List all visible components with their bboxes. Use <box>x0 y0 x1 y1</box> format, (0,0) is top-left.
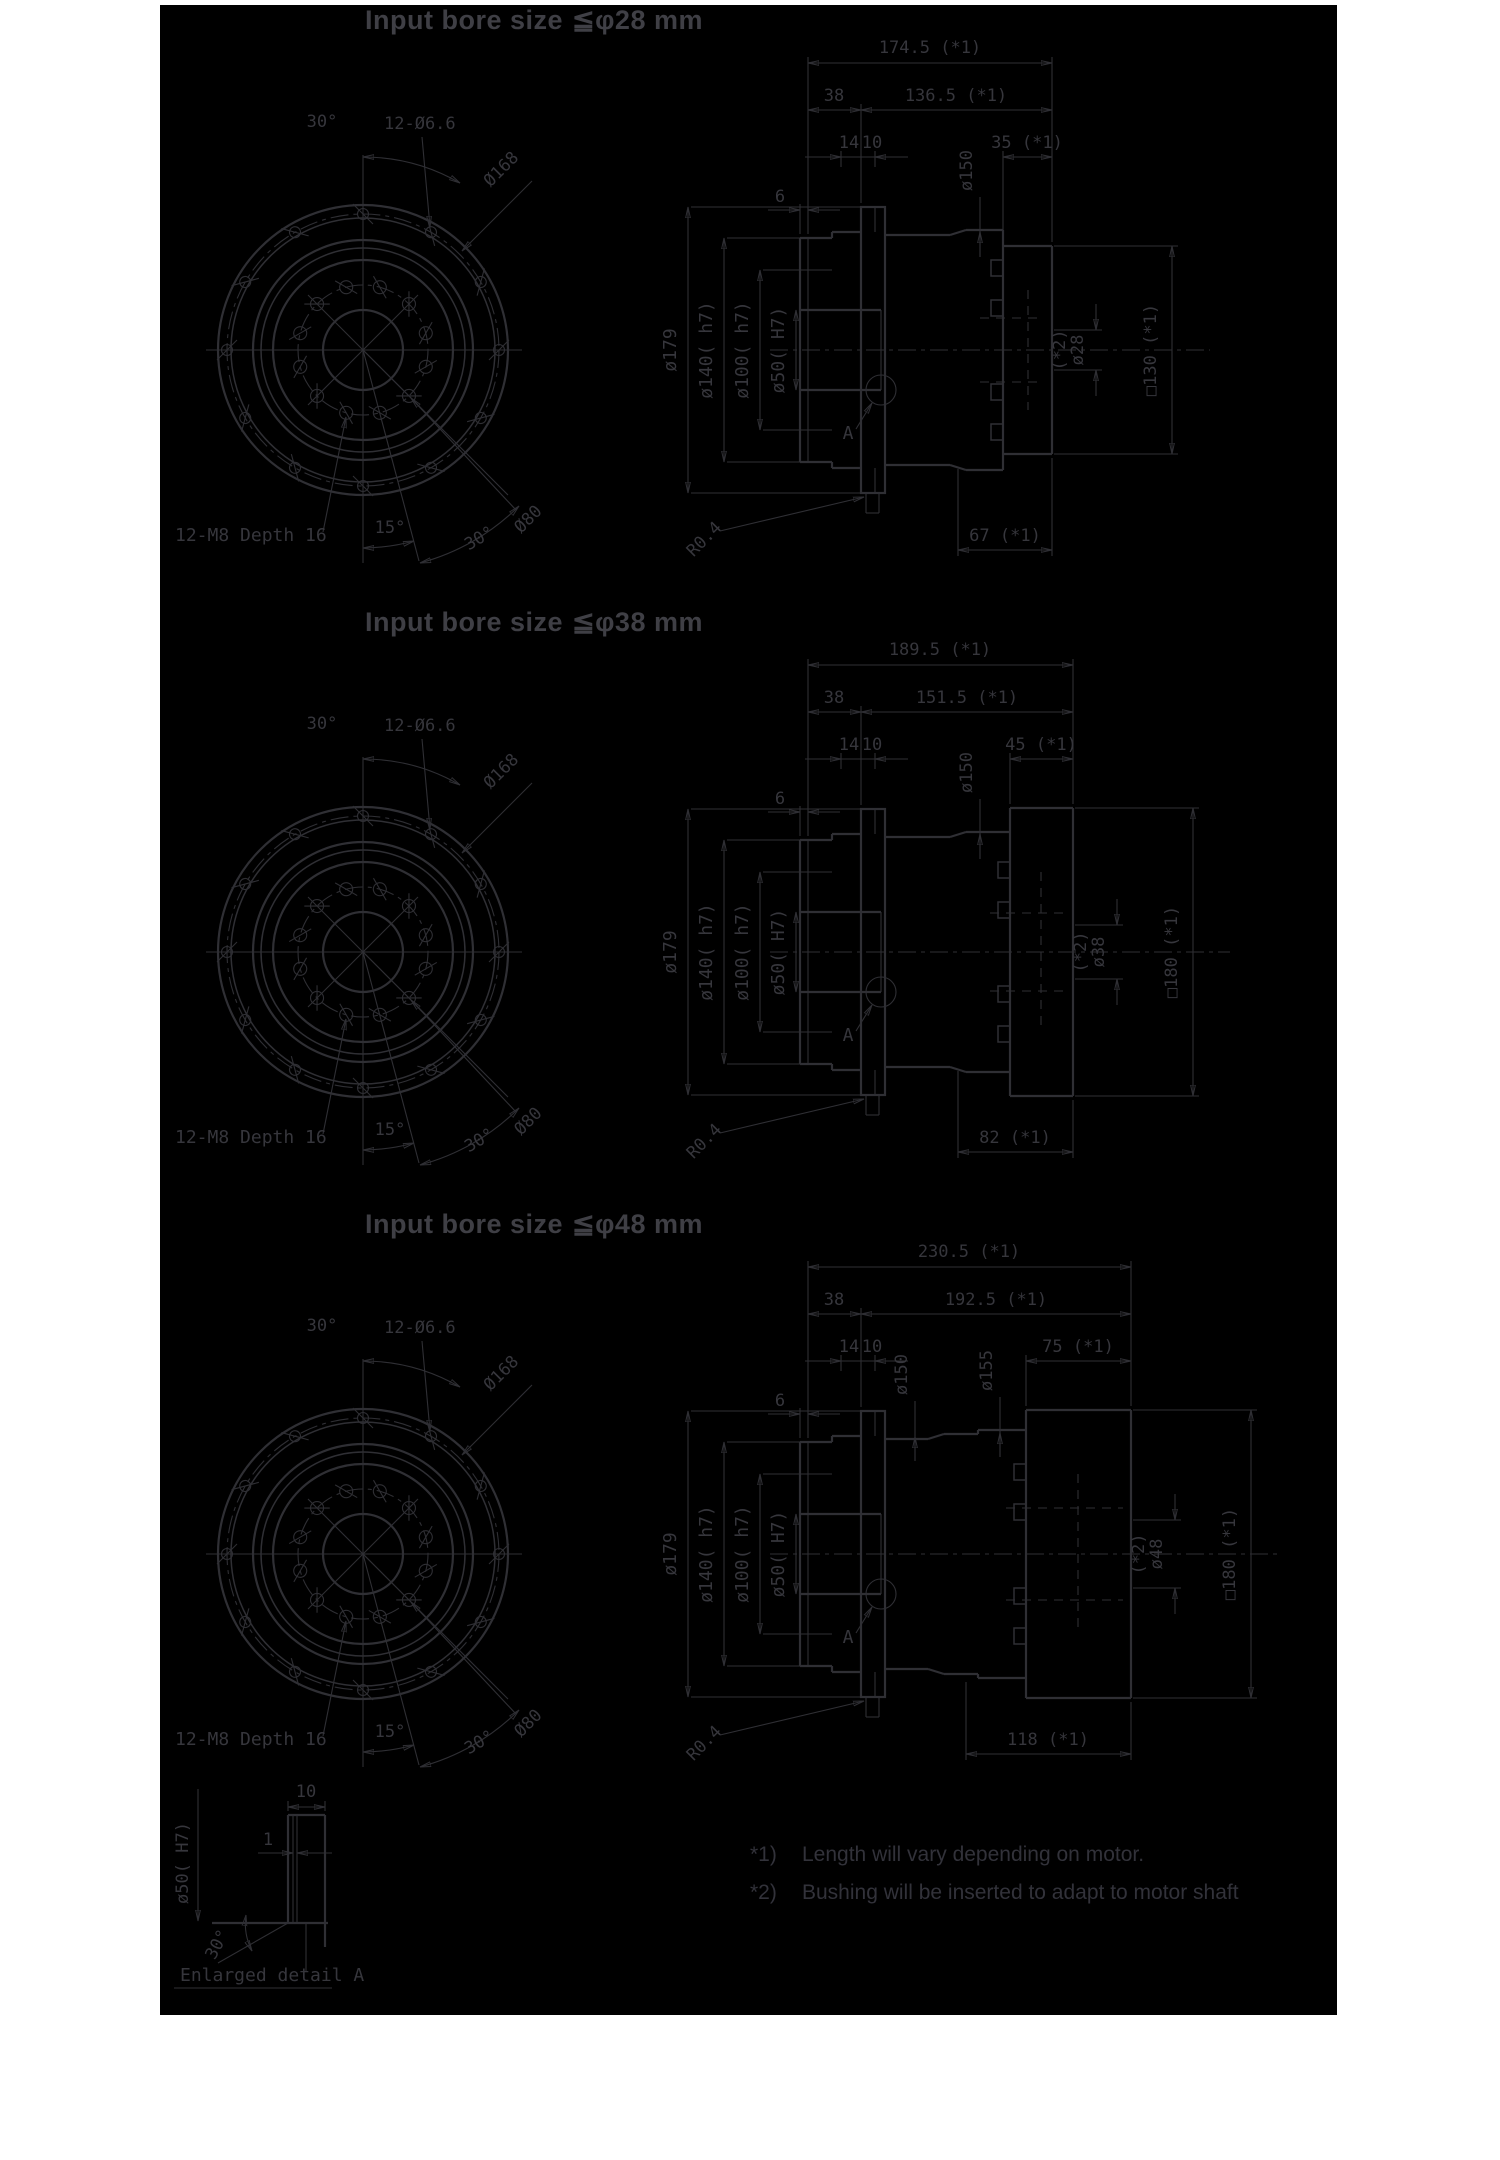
dim-rear-overhang: 118 (*1) <box>1007 1730 1089 1750</box>
bushing-ref-label: (*2) <box>1050 330 1070 371</box>
dim-bore-dia: ø50( H7) <box>768 909 789 996</box>
detail-ref-label: A <box>843 1627 854 1648</box>
section-title-value: ≦φ28 mm <box>572 5 703 35</box>
dim-body-dia: ø150 <box>957 752 977 793</box>
dim-rear-length: 192.5 (*1) <box>945 1290 1047 1310</box>
front-angle-15-label: 15° <box>375 1120 406 1140</box>
detail-plate-width-label: 10 <box>296 1782 316 1802</box>
fillet-label: R0.4 <box>683 1120 726 1163</box>
front-bolt-circle-label: Ø168 <box>480 750 523 793</box>
front-tap-spec-label: 12-M8 Depth 16 <box>175 1729 327 1750</box>
dim-body-dia: ø150 <box>957 150 977 191</box>
detail-ref-label: A <box>843 423 854 444</box>
dim-motor-length: 75 (*1) <box>1042 1337 1114 1357</box>
detail-groove-width-label: 1 <box>263 1830 273 1850</box>
section-title: Input bore size <box>365 1209 563 1239</box>
dim-flange-dia: ø179 <box>660 1532 681 1575</box>
dim-overall-length: 230.5 (*1) <box>918 1242 1020 1262</box>
detail-ref-label: A <box>843 1025 854 1046</box>
front-view: 30° 12-Ø6.6 Ø168 Ø80 12-M8 Depth 16 15° … <box>175 714 546 1165</box>
dim-input-bore: ø48 <box>1147 1539 1167 1570</box>
dim-step-length: 6 <box>775 789 785 809</box>
front-inner-bolt-circle-label: Ø80 <box>511 1104 547 1140</box>
front-angle-top-label: 30° <box>307 112 338 132</box>
fillet-label: R0.4 <box>683 1722 726 1765</box>
dim-pilot-dia: ø100( h7) <box>732 903 753 1001</box>
front-angle-15-label: 15° <box>375 518 406 538</box>
dim-front-length: 38 <box>824 86 844 106</box>
section-phi28: Input bore size ≦φ28 mm 30° 12-Ø6.6 Ø168… <box>160 5 1337 605</box>
dim-motor-frame: □180 (*1) <box>1162 906 1182 998</box>
dim-motor-frame: □130 (*1) <box>1141 304 1161 396</box>
section-title: Input bore size <box>365 5 563 35</box>
footnote-1-text: Length will vary depending on motor. <box>802 1843 1144 1867</box>
front-inner-bolt-circle-label: Ø80 <box>511 1706 547 1742</box>
front-bolt-spec-label: 12-Ø6.6 <box>384 114 456 134</box>
front-angle-15-label: 15° <box>375 1722 406 1742</box>
detail-caption: Enlarged detail A <box>180 1965 364 1986</box>
front-view: 30° 12-Ø6.6 Ø168 Ø80 12-M8 Depth 16 15° … <box>175 112 546 563</box>
dim-pilot-dia: ø100( h7) <box>732 1505 753 1603</box>
dim-flange-length: 14 <box>839 735 859 755</box>
dim-bore-dia: ø50( H7) <box>768 1511 789 1598</box>
dim-input-bore: ø38 <box>1089 937 1109 968</box>
footnote-2-text: Bushing will be inserted to adapt to mot… <box>802 1881 1239 1905</box>
dim-flange-dia: ø179 <box>660 930 681 973</box>
bushing-ref-label: (*2) <box>1129 1534 1149 1575</box>
side-view-dimensions: 189.5 (*1) 38 151.5 (*1) 14 10 45 (*1) 6… <box>660 640 1199 1163</box>
footnote-1-ref: *1) <box>750 1843 802 1867</box>
dim-bore-dia: ø50( H7) <box>768 307 789 394</box>
fillet-label: R0.4 <box>683 518 726 561</box>
front-angle-top-label: 30° <box>307 1316 338 1336</box>
footnote-1: *1) Length will vary depending on motor. <box>750 1843 1239 1867</box>
side-view <box>720 1410 1280 1735</box>
front-angle-30-label: 30° <box>461 1726 498 1759</box>
front-bolt-spec-label: 12-Ø6.6 <box>384 716 456 736</box>
section-title: Input bore size <box>365 607 563 637</box>
dim-rear-overhang: 82 (*1) <box>979 1128 1051 1148</box>
dim-motor-frame: □180 (*1) <box>1220 1508 1240 1600</box>
footnotes: *1) Length will vary depending on motor.… <box>750 1843 1239 1919</box>
front-tap-spec-label: 12-M8 Depth 16 <box>175 1127 327 1148</box>
dim-overall-length: 174.5 (*1) <box>879 38 981 58</box>
dim-flange-length: 14 <box>839 133 859 153</box>
dim-boss-dia: ø140( h7) <box>696 903 717 1001</box>
dim-front-length: 38 <box>824 1290 844 1310</box>
section-phi38: Input bore size ≦φ38 mm 30° 12-Ø6.6 Ø168… <box>160 607 1337 1207</box>
dim-body-dia: ø150 <box>892 1354 912 1395</box>
side-view-dimensions: 174.5 (*1) 38 136.5 (*1) 14 10 35 (*1) 6… <box>660 38 1178 561</box>
dim-rear-overhang: 67 (*1) <box>969 526 1041 546</box>
front-inner-bolt-circle-label: Ø80 <box>511 502 547 538</box>
footnote-2: *2) Bushing will be inserted to adapt to… <box>750 1881 1239 1905</box>
section-phi48: Input bore size ≦φ48 mm 30° 12-Ø6.6 Ø168… <box>160 1209 1337 1809</box>
page: Input bore size ≦φ28 mm 30° 12-Ø6.6 Ø168… <box>0 0 1500 2160</box>
drawing-canvas: Input bore size ≦φ28 mm 30° 12-Ø6.6 Ø168… <box>160 5 1337 2015</box>
dim-pilot-length: 10 <box>862 735 882 755</box>
bushing-ref-label: (*2) <box>1071 932 1091 973</box>
front-bolt-spec-label: 12-Ø6.6 <box>384 1318 456 1338</box>
front-tap-spec-label: 12-M8 Depth 16 <box>175 525 327 546</box>
dim-front-length: 38 <box>824 688 844 708</box>
dim-pilot-length: 10 <box>862 133 882 153</box>
dim-boss-dia: ø140( h7) <box>696 301 717 399</box>
front-bolt-circle-label: Ø168 <box>480 1352 523 1395</box>
section-title-value: ≦φ48 mm <box>572 1209 703 1239</box>
dim-step-length: 6 <box>775 187 785 207</box>
dim-body-dia2: ø155 <box>977 1350 997 1391</box>
front-view: 30° 12-Ø6.6 Ø168 Ø80 12-M8 Depth 16 15° … <box>175 1316 546 1767</box>
dim-input-bore: ø28 <box>1068 335 1088 366</box>
dim-motor-length: 45 (*1) <box>1005 735 1077 755</box>
dim-overall-length: 189.5 (*1) <box>889 640 991 660</box>
dim-flange-length: 14 <box>839 1337 859 1357</box>
front-angle-top-label: 30° <box>307 714 338 734</box>
enlarged-detail-a: 10 1 ø50( H7) 30° Enlarged detail A <box>160 1775 580 2015</box>
dim-pilot-length: 10 <box>862 1337 882 1357</box>
front-angle-30-label: 30° <box>461 1124 498 1157</box>
footnote-2-ref: *2) <box>750 1881 802 1905</box>
dim-boss-dia: ø140( h7) <box>696 1505 717 1603</box>
front-bolt-circle-label: Ø168 <box>480 148 523 191</box>
dim-flange-dia: ø179 <box>660 328 681 371</box>
side-view-dimensions: 230.5 (*1) 38 192.5 (*1) 14 10 75 (*1) 6… <box>660 1242 1257 1765</box>
side-view <box>720 207 1210 531</box>
dim-rear-length: 151.5 (*1) <box>916 688 1018 708</box>
detail-bore-dia-label: ø50( H7) <box>173 1822 193 1904</box>
dim-rear-length: 136.5 (*1) <box>905 86 1007 106</box>
front-angle-30-label: 30° <box>461 522 498 555</box>
dim-motor-length: 35 (*1) <box>991 133 1063 153</box>
dim-step-length: 6 <box>775 1391 785 1411</box>
section-title-value: ≦φ38 mm <box>572 607 703 637</box>
dim-pilot-dia: ø100( h7) <box>732 301 753 399</box>
